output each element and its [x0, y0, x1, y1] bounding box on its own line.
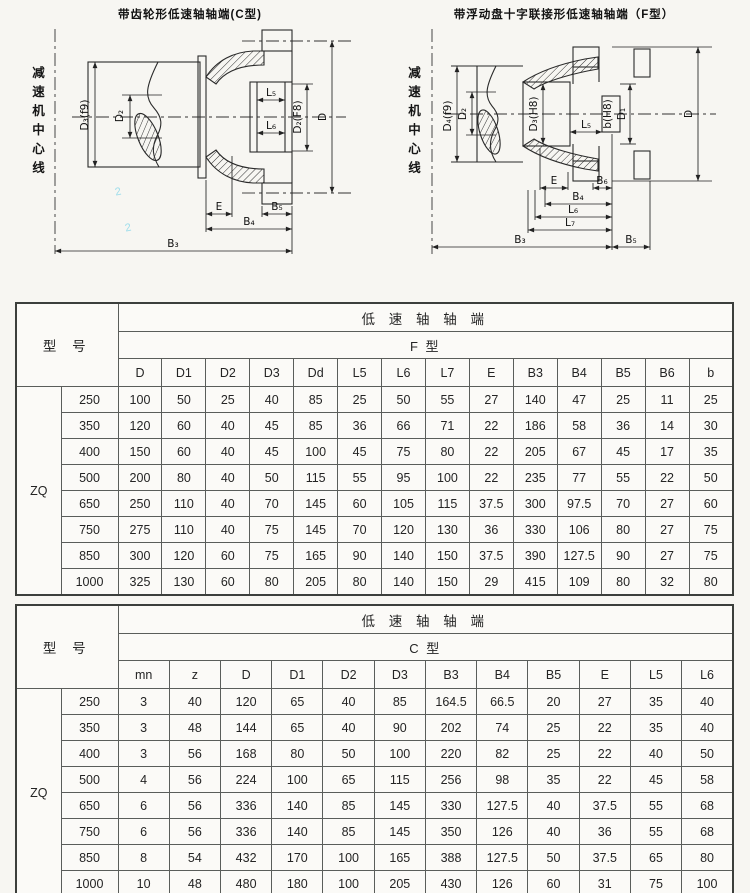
model-cell: 500 — [61, 465, 118, 491]
value-cell: 220 — [425, 741, 476, 767]
value-cell: 300 — [513, 491, 557, 517]
value-cell: 100 — [272, 767, 323, 793]
value-cell: 50 — [382, 387, 426, 413]
value-cell: 27 — [645, 491, 689, 517]
value-cell: 202 — [425, 715, 476, 741]
value-cell: 186 — [513, 413, 557, 439]
value-cell: 82 — [477, 741, 528, 767]
dim-label-d2: D₂ — [114, 110, 126, 122]
column-header-d3: D3 — [250, 359, 294, 387]
value-cell: 145 — [374, 793, 425, 819]
value-cell: 11 — [645, 387, 689, 413]
series-label: ZQ — [16, 689, 61, 893]
column-header-d2: D2 — [206, 359, 250, 387]
group-header: 低 速 轴 轴 端 — [118, 303, 733, 332]
value-cell: 60 — [162, 413, 206, 439]
value-cell: 35 — [630, 689, 681, 715]
value-cell: 25 — [601, 387, 645, 413]
value-cell: 22 — [645, 465, 689, 491]
value-cell: 127.5 — [477, 793, 528, 819]
column-header-d: D — [220, 661, 271, 689]
value-cell: 165 — [294, 543, 338, 569]
value-cell: 58 — [557, 413, 601, 439]
c-type-spec-table: 型 号 低 速 轴 轴 端 C 型 mnzDD1D2D3B3B4B5EL5L6 … — [15, 604, 734, 893]
dim-label-b5: B₅ — [271, 201, 282, 213]
value-cell: 130 — [425, 517, 469, 543]
value-cell: 55 — [601, 465, 645, 491]
value-cell: 140 — [382, 543, 426, 569]
value-cell: 90 — [601, 543, 645, 569]
value-cell: 200 — [118, 465, 162, 491]
column-header-d2: D2 — [323, 661, 374, 689]
column-header-e: E — [469, 359, 513, 387]
value-cell: 40 — [528, 819, 579, 845]
value-cell: 164.5 — [425, 689, 476, 715]
value-cell: 300 — [118, 543, 162, 569]
column-header-b6: B6 — [645, 359, 689, 387]
value-cell: 126 — [477, 819, 528, 845]
value-cell: 145 — [294, 491, 338, 517]
dim-label-b6: B₆ — [596, 175, 607, 187]
value-cell: 40 — [682, 689, 733, 715]
value-cell: 77 — [557, 465, 601, 491]
table-row: 65065633614085145330127.54037.55568 — [16, 793, 733, 819]
value-cell: 17 — [645, 439, 689, 465]
value-cell: 350 — [425, 819, 476, 845]
value-cell: 50 — [528, 845, 579, 871]
dim-label-l6: L₆ — [266, 120, 276, 132]
diagram-type-c: 带齿轮形低速轴轴端(C型) 减速机中心线 — [10, 4, 370, 272]
table-row: 75027511040751457012013036330106802775 — [16, 517, 733, 543]
value-cell: 65 — [272, 715, 323, 741]
value-cell: 140 — [382, 569, 426, 596]
dim-label-l6: L₆ — [568, 204, 578, 216]
value-cell: 150 — [118, 439, 162, 465]
value-cell: 168 — [220, 741, 271, 767]
model-cell: 1000 — [61, 569, 118, 596]
value-cell: 37.5 — [579, 845, 630, 871]
value-cell: 40 — [206, 517, 250, 543]
value-cell: 140 — [272, 819, 323, 845]
column-header-z: z — [169, 661, 220, 689]
value-cell: 250 — [118, 491, 162, 517]
value-cell: 75 — [630, 871, 681, 893]
value-cell: 80 — [162, 465, 206, 491]
column-header-d: D — [118, 359, 162, 387]
value-cell: 31 — [579, 871, 630, 893]
dim-label-b5: B₅ — [625, 234, 636, 246]
value-cell: 40 — [323, 689, 374, 715]
value-cell: 65 — [323, 767, 374, 793]
dim-label-b3: B₃ — [167, 238, 178, 250]
dim-label-e: E — [551, 175, 558, 187]
value-cell: 60 — [162, 439, 206, 465]
model-header: 型 号 — [16, 605, 118, 689]
value-cell: 140 — [513, 387, 557, 413]
value-cell: 105 — [382, 491, 426, 517]
value-cell: 40 — [682, 715, 733, 741]
model-cell: 1000 — [61, 871, 118, 893]
value-cell: 40 — [250, 387, 294, 413]
value-cell: 85 — [374, 689, 425, 715]
value-cell: 22 — [469, 413, 513, 439]
table-row: 7506563361408514535012640365568 — [16, 819, 733, 845]
c-dimension-lines — [55, 41, 332, 254]
value-cell: 27 — [645, 517, 689, 543]
columns-row: DD1D2D3DdL5L6L7EB3B4B5B6b — [16, 359, 733, 387]
model-cell: 650 — [61, 491, 118, 517]
value-cell: 100 — [323, 845, 374, 871]
value-cell: 48 — [169, 715, 220, 741]
value-cell: 6 — [118, 819, 169, 845]
value-cell: 60 — [206, 569, 250, 596]
value-cell: 75 — [250, 517, 294, 543]
value-cell: 127.5 — [477, 845, 528, 871]
f-type-drawing: D₄(f9) D₂ D₃(H8) L₅ b(H8) D₁ D E B₆ B₄ L… — [380, 4, 748, 272]
value-cell: 430 — [425, 871, 476, 893]
model-cell: 850 — [61, 845, 118, 871]
value-cell: 3 — [118, 689, 169, 715]
value-cell: 56 — [169, 767, 220, 793]
value-cell: 150 — [425, 569, 469, 596]
value-cell: 20 — [528, 689, 579, 715]
table-row: 10001048480180100205430126603175100 — [16, 871, 733, 893]
value-cell: 85 — [323, 819, 374, 845]
value-cell: 40 — [169, 689, 220, 715]
value-cell: 336 — [220, 819, 271, 845]
value-cell: 80 — [425, 439, 469, 465]
value-cell: 54 — [169, 845, 220, 871]
value-cell: 55 — [630, 819, 681, 845]
value-cell: 36 — [601, 413, 645, 439]
value-cell: 90 — [338, 543, 382, 569]
value-cell: 40 — [206, 413, 250, 439]
value-cell: 40 — [206, 465, 250, 491]
dim-label-l5: L₅ — [581, 119, 591, 131]
value-cell: 56 — [169, 793, 220, 819]
value-cell: 100 — [682, 871, 733, 893]
c-type-drawing: D₃(f9) D₂ L₅ L₆ D₂(F8) D E B₅ B₄ B₃ — [10, 4, 370, 272]
value-cell: 100 — [294, 439, 338, 465]
column-header-l6: L6 — [682, 661, 733, 689]
value-cell: 170 — [272, 845, 323, 871]
value-cell: 4 — [118, 767, 169, 793]
value-cell: 80 — [689, 569, 733, 596]
value-cell: 180 — [272, 871, 323, 893]
model-cell: 750 — [61, 517, 118, 543]
value-cell: 37.5 — [579, 793, 630, 819]
value-cell: 145 — [294, 517, 338, 543]
dim-label-d2: D₂ — [457, 108, 469, 120]
value-cell: 85 — [294, 413, 338, 439]
value-cell: 35 — [630, 715, 681, 741]
model-cell: 350 — [61, 715, 118, 741]
series-label: ZQ — [16, 387, 61, 596]
value-cell: 106 — [557, 517, 601, 543]
value-cell: 98 — [477, 767, 528, 793]
dim-label-d4f9: D₄(f9) — [442, 101, 454, 132]
value-cell: 80 — [601, 517, 645, 543]
value-cell: 40 — [206, 439, 250, 465]
value-cell: 56 — [169, 741, 220, 767]
value-cell: 75 — [250, 543, 294, 569]
value-cell: 60 — [338, 491, 382, 517]
value-cell: 25 — [528, 741, 579, 767]
column-header-b: b — [689, 359, 733, 387]
value-cell: 66.5 — [477, 689, 528, 715]
model-cell: 250 — [61, 387, 118, 413]
value-cell: 56 — [169, 819, 220, 845]
value-cell: 25 — [689, 387, 733, 413]
value-cell: 80 — [601, 569, 645, 596]
value-cell: 36 — [579, 819, 630, 845]
column-header-b3: B3 — [513, 359, 557, 387]
value-cell: 45 — [250, 413, 294, 439]
dim-label-bh8: b(H8) — [602, 99, 614, 128]
value-cell: 65 — [272, 689, 323, 715]
value-cell: 68 — [682, 793, 733, 819]
model-cell: 400 — [61, 741, 118, 767]
table-row: 50020080405011555951002223577552250 — [16, 465, 733, 491]
value-cell: 70 — [601, 491, 645, 517]
value-cell: 25 — [528, 715, 579, 741]
value-cell: 205 — [513, 439, 557, 465]
value-cell: 235 — [513, 465, 557, 491]
value-cell: 58 — [682, 767, 733, 793]
value-cell: 40 — [528, 793, 579, 819]
column-header-b5: B5 — [601, 359, 645, 387]
value-cell: 144 — [220, 715, 271, 741]
type-header: F 型 — [118, 332, 733, 359]
value-cell: 25 — [338, 387, 382, 413]
value-cell: 256 — [425, 767, 476, 793]
value-cell: 45 — [630, 767, 681, 793]
value-cell: 68 — [682, 819, 733, 845]
table-row: 850854432170100165388127.55037.56580 — [16, 845, 733, 871]
value-cell: 330 — [425, 793, 476, 819]
value-cell: 110 — [162, 517, 206, 543]
column-header-d1: D1 — [272, 661, 323, 689]
table-row: 100032513060802058014015029415109803280 — [16, 569, 733, 596]
column-header-mn: mn — [118, 661, 169, 689]
value-cell: 480 — [220, 871, 271, 893]
value-cell: 100 — [118, 387, 162, 413]
dim-label-d1: D₁ — [616, 108, 628, 120]
value-cell: 65 — [630, 845, 681, 871]
value-cell: 120 — [220, 689, 271, 715]
c-centerlines — [55, 29, 354, 254]
value-cell: 40 — [206, 491, 250, 517]
dim-label-b4: B₄ — [243, 216, 254, 228]
value-cell: 75 — [689, 517, 733, 543]
value-cell: 55 — [425, 387, 469, 413]
value-cell: 45 — [338, 439, 382, 465]
value-cell: 60 — [528, 871, 579, 893]
value-cell: 45 — [601, 439, 645, 465]
value-cell: 55 — [630, 793, 681, 819]
dim-label-d: D — [683, 110, 695, 118]
value-cell: 50 — [689, 465, 733, 491]
table-row: 3503481446540902027425223540 — [16, 715, 733, 741]
value-cell: 22 — [469, 465, 513, 491]
model-header: 型 号 — [16, 303, 118, 387]
value-cell: 10 — [118, 871, 169, 893]
table-row: 500456224100651152569835224558 — [16, 767, 733, 793]
value-cell: 40 — [323, 715, 374, 741]
value-cell: 45 — [250, 439, 294, 465]
value-cell: 27 — [579, 689, 630, 715]
value-cell: 115 — [425, 491, 469, 517]
value-cell: 48 — [169, 871, 220, 893]
dim-label-e: E — [216, 201, 223, 213]
value-cell: 95 — [382, 465, 426, 491]
value-cell: 415 — [513, 569, 557, 596]
value-cell: 37.5 — [469, 543, 513, 569]
dim-label-l7: L₇ — [565, 217, 575, 229]
column-header-l5: L5 — [338, 359, 382, 387]
dim-label-b3: B₃ — [514, 234, 525, 246]
value-cell: 336 — [220, 793, 271, 819]
value-cell: 388 — [425, 845, 476, 871]
value-cell: 205 — [374, 871, 425, 893]
model-cell: 650 — [61, 793, 118, 819]
value-cell: 165 — [374, 845, 425, 871]
type-header: C 型 — [118, 634, 733, 661]
value-cell: 27 — [645, 543, 689, 569]
value-cell: 8 — [118, 845, 169, 871]
model-cell: 500 — [61, 767, 118, 793]
value-cell: 35 — [689, 439, 733, 465]
value-cell: 71 — [425, 413, 469, 439]
value-cell: 27 — [469, 387, 513, 413]
value-cell: 60 — [689, 491, 733, 517]
column-header-d1: D1 — [162, 359, 206, 387]
value-cell: 66 — [382, 413, 426, 439]
value-cell: 6 — [118, 793, 169, 819]
group-header: 低 速 轴 轴 端 — [118, 605, 733, 634]
value-cell: 205 — [294, 569, 338, 596]
value-cell: 80 — [272, 741, 323, 767]
value-cell: 97.5 — [557, 491, 601, 517]
value-cell: 47 — [557, 387, 601, 413]
table-row: 350120604045853666712218658361430 — [16, 413, 733, 439]
value-cell: 325 — [118, 569, 162, 596]
value-cell: 100 — [374, 741, 425, 767]
column-header-b4: B4 — [477, 661, 528, 689]
column-header-l7: L7 — [425, 359, 469, 387]
value-cell: 55 — [338, 465, 382, 491]
table-row: 40035616880501002208225224050 — [16, 741, 733, 767]
dim-label-d3h8: D₃(H8) — [528, 96, 540, 131]
column-header-l5: L5 — [630, 661, 681, 689]
value-cell: 50 — [162, 387, 206, 413]
f-type-spec-table: 型 号 低 速 轴 轴 端 F 型 DD1D2D3DdL5L6L7EB3B4B5… — [15, 302, 734, 596]
value-cell: 109 — [557, 569, 601, 596]
value-cell: 14 — [645, 413, 689, 439]
value-cell: 70 — [338, 517, 382, 543]
value-cell: 75 — [382, 439, 426, 465]
diagram-type-f: 带浮动盘十字联接形低速轴轴端（F型） 减速机中心线 — [380, 4, 748, 272]
value-cell: 126 — [477, 871, 528, 893]
column-header-dd: Dd — [294, 359, 338, 387]
value-cell: 74 — [477, 715, 528, 741]
model-cell: 850 — [61, 543, 118, 569]
value-cell: 3 — [118, 715, 169, 741]
dim-label-d2f8: D₂(F8) — [292, 100, 304, 133]
scanned-page: 带齿轮形低速轴轴端(C型) 减速机中心线 — [0, 0, 750, 893]
value-cell: 150 — [425, 543, 469, 569]
value-cell: 50 — [682, 741, 733, 767]
model-cell: 250 — [61, 689, 118, 715]
value-cell: 25 — [206, 387, 250, 413]
value-cell: 60 — [206, 543, 250, 569]
value-cell: 85 — [294, 387, 338, 413]
value-cell: 100 — [425, 465, 469, 491]
value-cell: 115 — [294, 465, 338, 491]
dim-label-d3f9: D₃(f9) — [79, 100, 91, 131]
model-cell: 750 — [61, 819, 118, 845]
columns-row: mnzDD1D2D3B3B4B5EL5L6 — [16, 661, 733, 689]
value-cell: 32 — [645, 569, 689, 596]
value-cell: 115 — [374, 767, 425, 793]
value-cell: 70 — [250, 491, 294, 517]
value-cell: 67 — [557, 439, 601, 465]
value-cell: 390 — [513, 543, 557, 569]
value-cell: 80 — [338, 569, 382, 596]
value-cell: 30 — [689, 413, 733, 439]
column-header-b5: B5 — [528, 661, 579, 689]
value-cell: 140 — [272, 793, 323, 819]
value-cell: 35 — [528, 767, 579, 793]
dim-label-b4: B₄ — [572, 191, 583, 203]
column-header-b3: B3 — [425, 661, 476, 689]
value-cell: 80 — [682, 845, 733, 871]
value-cell: 145 — [374, 819, 425, 845]
value-cell: 330 — [513, 517, 557, 543]
value-cell: 22 — [579, 741, 630, 767]
table-row: ZQ250340120654085164.566.520273540 — [16, 689, 733, 715]
model-cell: 400 — [61, 439, 118, 465]
value-cell: 22 — [469, 439, 513, 465]
value-cell: 120 — [162, 543, 206, 569]
value-cell: 29 — [469, 569, 513, 596]
column-header-e: E — [579, 661, 630, 689]
value-cell: 36 — [469, 517, 513, 543]
value-cell: 80 — [250, 569, 294, 596]
value-cell: 36 — [338, 413, 382, 439]
table-row: 65025011040701456010511537.530097.570276… — [16, 491, 733, 517]
value-cell: 110 — [162, 491, 206, 517]
value-cell: 3 — [118, 741, 169, 767]
c-table-body: ZQ250340120654085164.566.520273540350348… — [16, 689, 733, 893]
value-cell: 22 — [579, 767, 630, 793]
value-cell: 85 — [323, 793, 374, 819]
dim-label-l5: L₅ — [266, 87, 276, 99]
f-table-body: ZQ25010050254085255055271404725112535012… — [16, 387, 733, 596]
value-cell: 130 — [162, 569, 206, 596]
value-cell: 37.5 — [469, 491, 513, 517]
dim-label-d: D — [317, 113, 329, 121]
value-cell: 432 — [220, 845, 271, 871]
value-cell: 75 — [689, 543, 733, 569]
value-cell: 50 — [250, 465, 294, 491]
value-cell: 224 — [220, 767, 271, 793]
column-header-l6: L6 — [382, 359, 426, 387]
table-row: 4001506040451004575802220567451735 — [16, 439, 733, 465]
value-cell: 100 — [323, 871, 374, 893]
column-header-b4: B4 — [557, 359, 601, 387]
value-cell: 22 — [579, 715, 630, 741]
